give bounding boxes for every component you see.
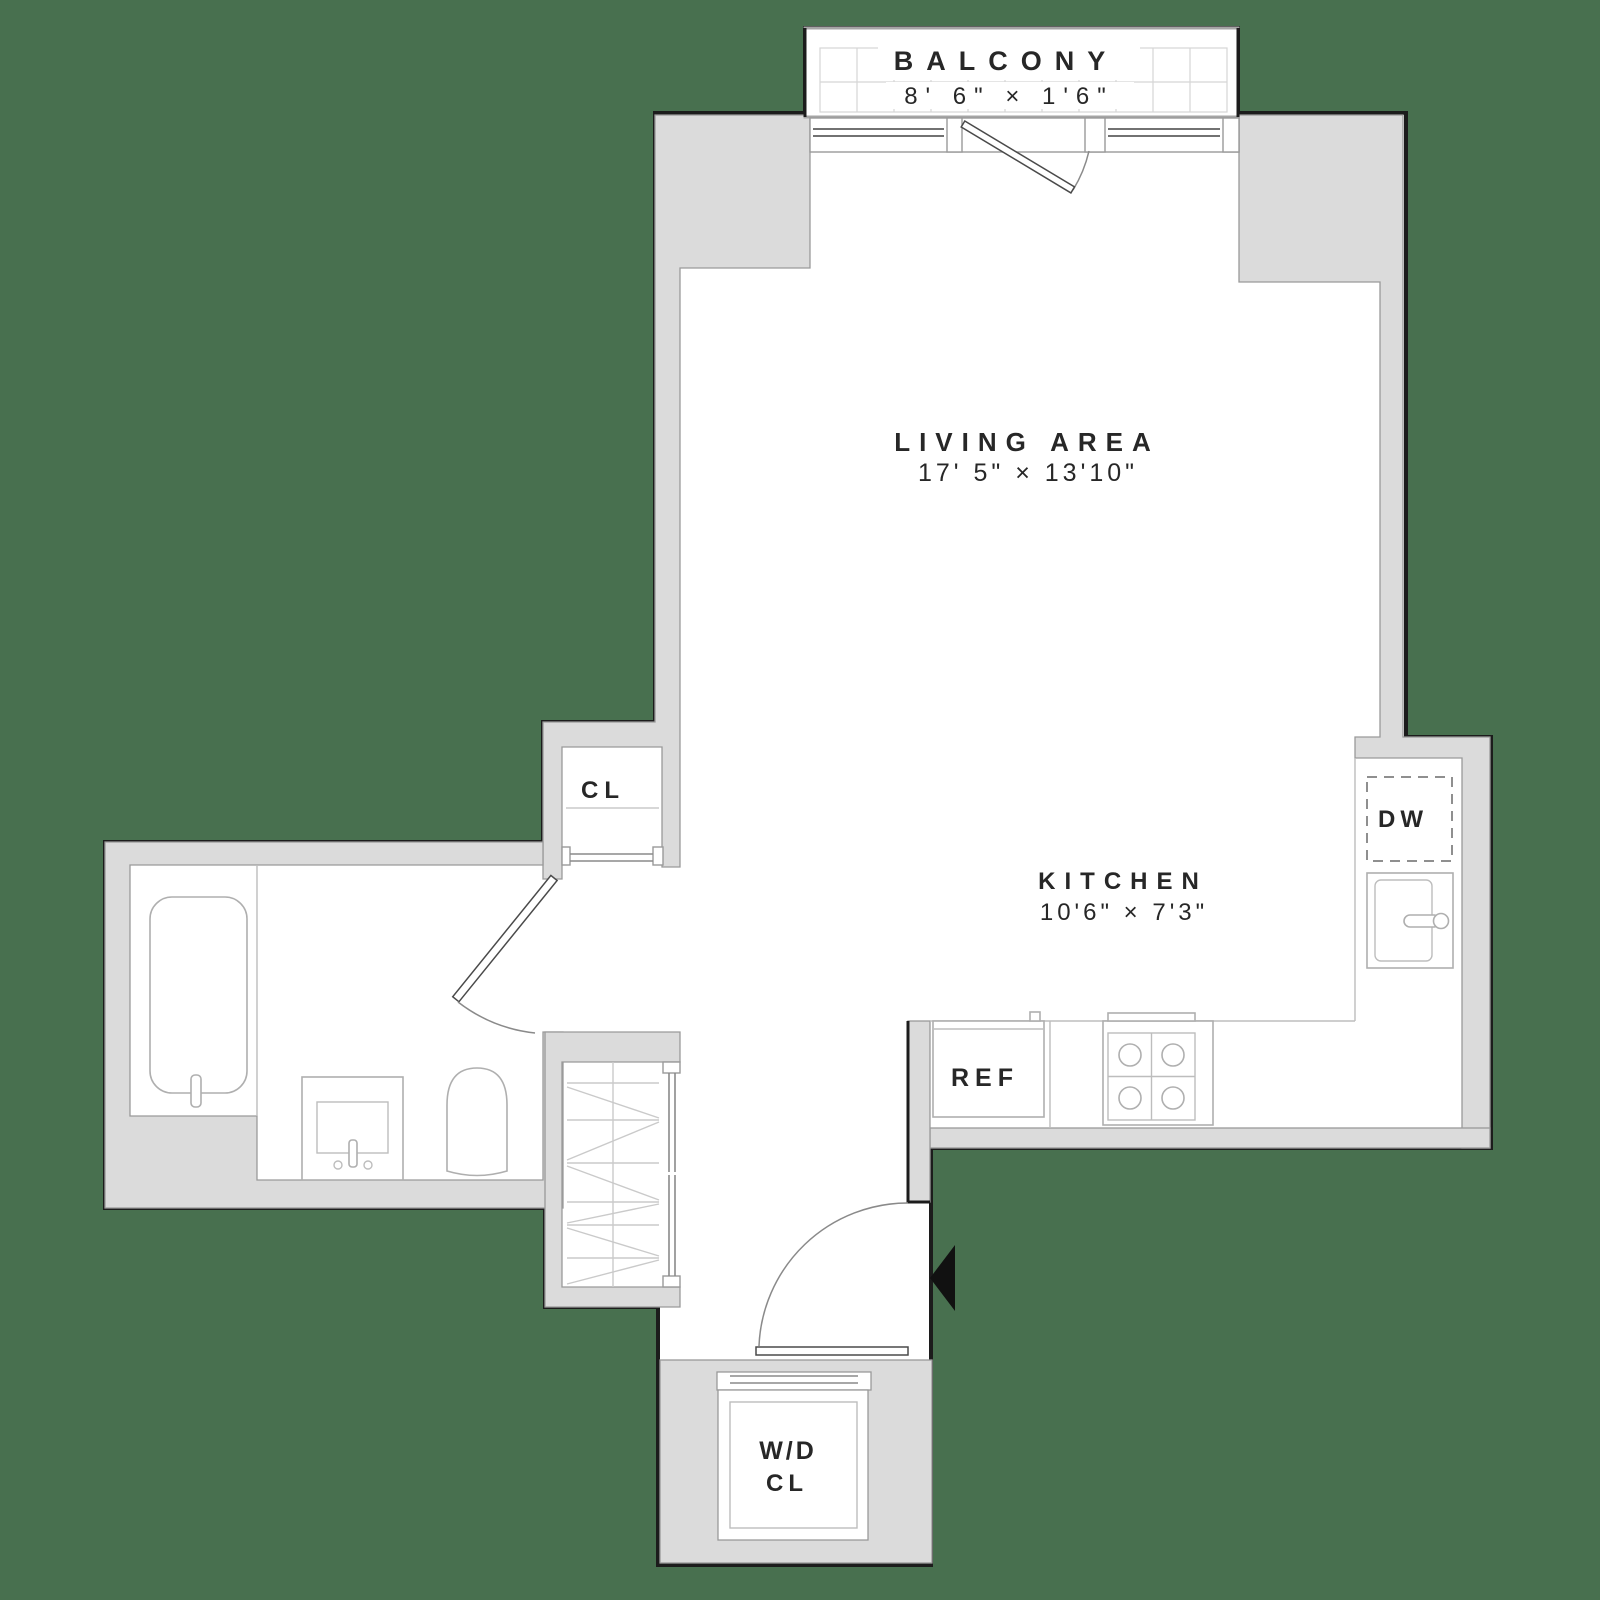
burner-icon [1119, 1087, 1141, 1109]
window-frame [810, 118, 1239, 152]
living-area-dimensions: 17' 5" × 13'10" [918, 459, 1138, 487]
entry-door-leaf [756, 1347, 908, 1355]
window-mullion-right [1085, 118, 1105, 152]
wall-bottom [930, 1128, 1490, 1148]
burner-icon [1162, 1087, 1184, 1109]
window-mullion-left [947, 118, 962, 152]
wd-label-line1: W/D [759, 1437, 817, 1465]
vanity-sink [302, 1077, 403, 1180]
closet-jamb-right [653, 847, 663, 865]
kitchen-label: KITCHEN [1038, 868, 1208, 895]
refrigerator-label: REF [951, 1064, 1019, 1092]
bathtub [150, 897, 247, 1093]
wd-interior [718, 1390, 868, 1540]
toilet [447, 1068, 507, 1176]
refrigerator: REF [933, 1012, 1044, 1117]
wd-label-line2: CL [766, 1470, 808, 1497]
dishwasher-label: DW [1378, 806, 1428, 833]
stove-back-edge [1108, 1013, 1195, 1021]
bathtub-faucet [191, 1075, 201, 1107]
closet-jamb-top [663, 1062, 680, 1073]
burner-icon [1162, 1044, 1184, 1066]
stove [1103, 1013, 1213, 1125]
vanity-faucet [349, 1140, 357, 1167]
balcony: BALCONY 8' 6" × 1'6" [805, 28, 1238, 117]
wd-opening [717, 1372, 871, 1390]
burner-icon [1119, 1044, 1141, 1066]
window-mullion-end [1223, 118, 1239, 152]
closet-label: CL [581, 777, 625, 804]
closet-jamb-left [562, 847, 570, 865]
kitchen-dimensions: 10'6" × 7'3" [1040, 899, 1208, 926]
refrigerator-handle [1030, 1012, 1040, 1021]
stove-box [1103, 1021, 1213, 1125]
living-area-label: LIVING AREA [894, 427, 1160, 457]
sink-faucet-base [1434, 914, 1449, 929]
balcony-label: BALCONY [894, 46, 1119, 76]
balcony-dimensions: 8' 6" × 1'6" [904, 83, 1114, 110]
washer-dryer-closet: W/D CL [717, 1372, 871, 1540]
closet-jamb-bottom [663, 1276, 680, 1287]
kitchen-sink [1367, 873, 1453, 968]
wall-kitchen-stub [908, 1021, 930, 1202]
floor-plan: BALCONY 8' 6" × 1'6" LIVING AREA 17' 5" … [0, 0, 1600, 1600]
